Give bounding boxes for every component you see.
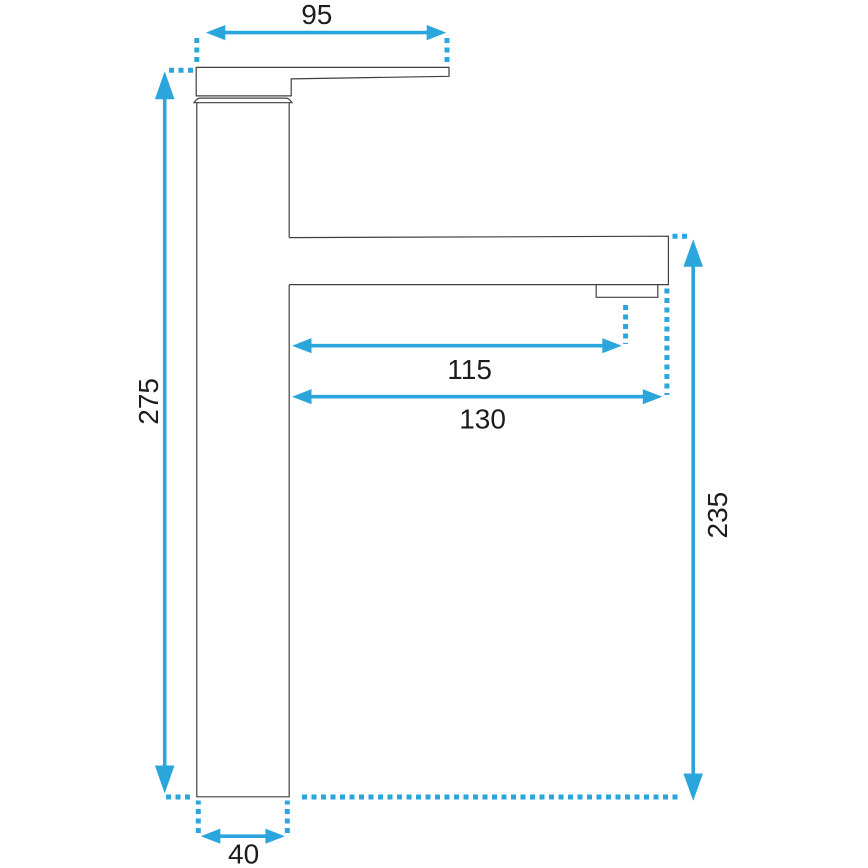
svg-text:95: 95 [301, 0, 332, 30]
svg-text:130: 130 [459, 404, 506, 435]
svg-text:40: 40 [228, 839, 259, 868]
svg-text:115: 115 [447, 354, 492, 385]
svg-text:275: 275 [133, 378, 164, 425]
svg-text:235: 235 [702, 492, 733, 539]
